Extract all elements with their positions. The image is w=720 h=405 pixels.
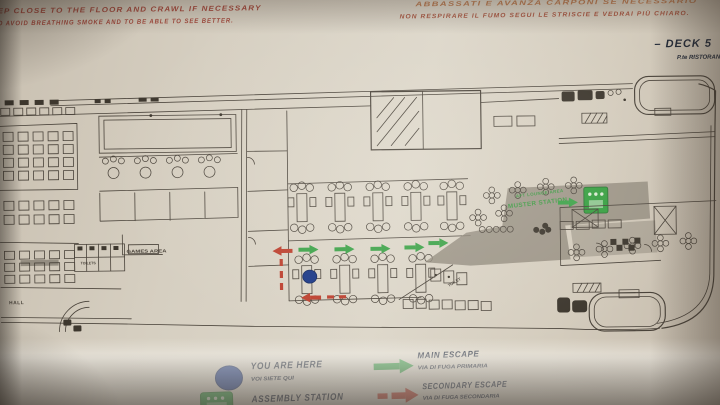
funnel-structure bbox=[493, 76, 715, 127]
lifeboat-structure bbox=[557, 282, 666, 331]
you-are-here-label: YOU ARE HERE bbox=[250, 359, 322, 372]
toilets-label: TOILETS bbox=[81, 261, 97, 265]
legend-you-are-here: YOU ARE HERE VOI SIETE QUI bbox=[215, 359, 323, 390]
secondary-escape-sublabel: VIA DI FUGA SECONDARIA bbox=[423, 393, 500, 401]
legend-secondary-escape: SECONDARY ESCAPE VIA DI FUGA SECONDARIA bbox=[377, 379, 508, 404]
deck-plan-drawing: EP CLOSE TO THE FLOOR AND CRAWL IF NECES… bbox=[0, 0, 720, 405]
seating-grid-lower bbox=[4, 250, 74, 283]
deck-sublabel: P.te RISTORAN bbox=[677, 55, 720, 62]
assembly-station-label: ASSEMBLY STATION bbox=[251, 392, 344, 405]
deck-label: – DECK 5 bbox=[654, 38, 712, 51]
legend-main-escape: MAIN ESCAPE VIA DI FUGA PRIMARIA bbox=[373, 348, 488, 374]
hatched-stair-block bbox=[582, 113, 607, 123]
instruction-en-line2: O AVOID BREATHING SMOKE AND TO BE ABLE T… bbox=[0, 18, 234, 28]
main-escape-sublabel: VIA DI FUGA PRIMARIA bbox=[418, 363, 488, 371]
legend-assembly-station: ASSEMBLY STATION bbox=[200, 389, 344, 405]
instruction-text-italian: ABBASSATI E AVANZA CARPONI SE NECESSARIO… bbox=[399, 0, 697, 21]
ship-safety-plan-photo: EP CLOSE TO THE FLOOR AND CRAWL IF NECES… bbox=[0, 0, 720, 405]
instruction-en-line1: EP CLOSE TO THE FLOOR AND CRAWL IF NECES… bbox=[0, 3, 262, 15]
center-left-lounge: GAMES AREA bbox=[99, 113, 239, 255]
you-are-here-dot bbox=[303, 270, 317, 283]
main-escape-legend-arrow bbox=[373, 358, 413, 374]
hatched-block-bottom bbox=[573, 283, 601, 292]
seating-grid-upper bbox=[0, 123, 78, 190]
instruction-it-line2: NON RESPIRARE IL FUMO SEGUI LE STRISCIE … bbox=[400, 10, 690, 21]
toilets-block: TOILETS bbox=[74, 244, 124, 272]
games-area-label: GAMES AREA bbox=[126, 248, 167, 254]
seating-grid-mid bbox=[0, 200, 78, 244]
main-escape-route-arrows bbox=[298, 238, 448, 254]
restaurant-booths-upper bbox=[288, 179, 471, 241]
hall-room: HALL bbox=[1, 286, 132, 333]
you-are-here-sublabel: VOI SIETE QUI bbox=[251, 375, 295, 382]
instruction-it-line1: ABBASSATI E AVANZA CARPONI SE NECESSARIO bbox=[414, 0, 697, 8]
main-escape-label: MAIN ESCAPE bbox=[417, 348, 479, 360]
secondary-escape-label: SECONDARY ESCAPE bbox=[422, 379, 507, 392]
legend: YOU ARE HERE VOI SIETE QUI ASSEMBLY STAT… bbox=[199, 348, 507, 405]
top-center-structure bbox=[371, 91, 482, 150]
hall-label: HALL bbox=[9, 300, 24, 306]
instruction-text-english: EP CLOSE TO THE FLOOR AND CRAWL IF NECES… bbox=[0, 3, 262, 27]
secondary-escape-legend-arrow bbox=[377, 387, 418, 403]
you-are-here-legend-dot bbox=[215, 366, 243, 391]
